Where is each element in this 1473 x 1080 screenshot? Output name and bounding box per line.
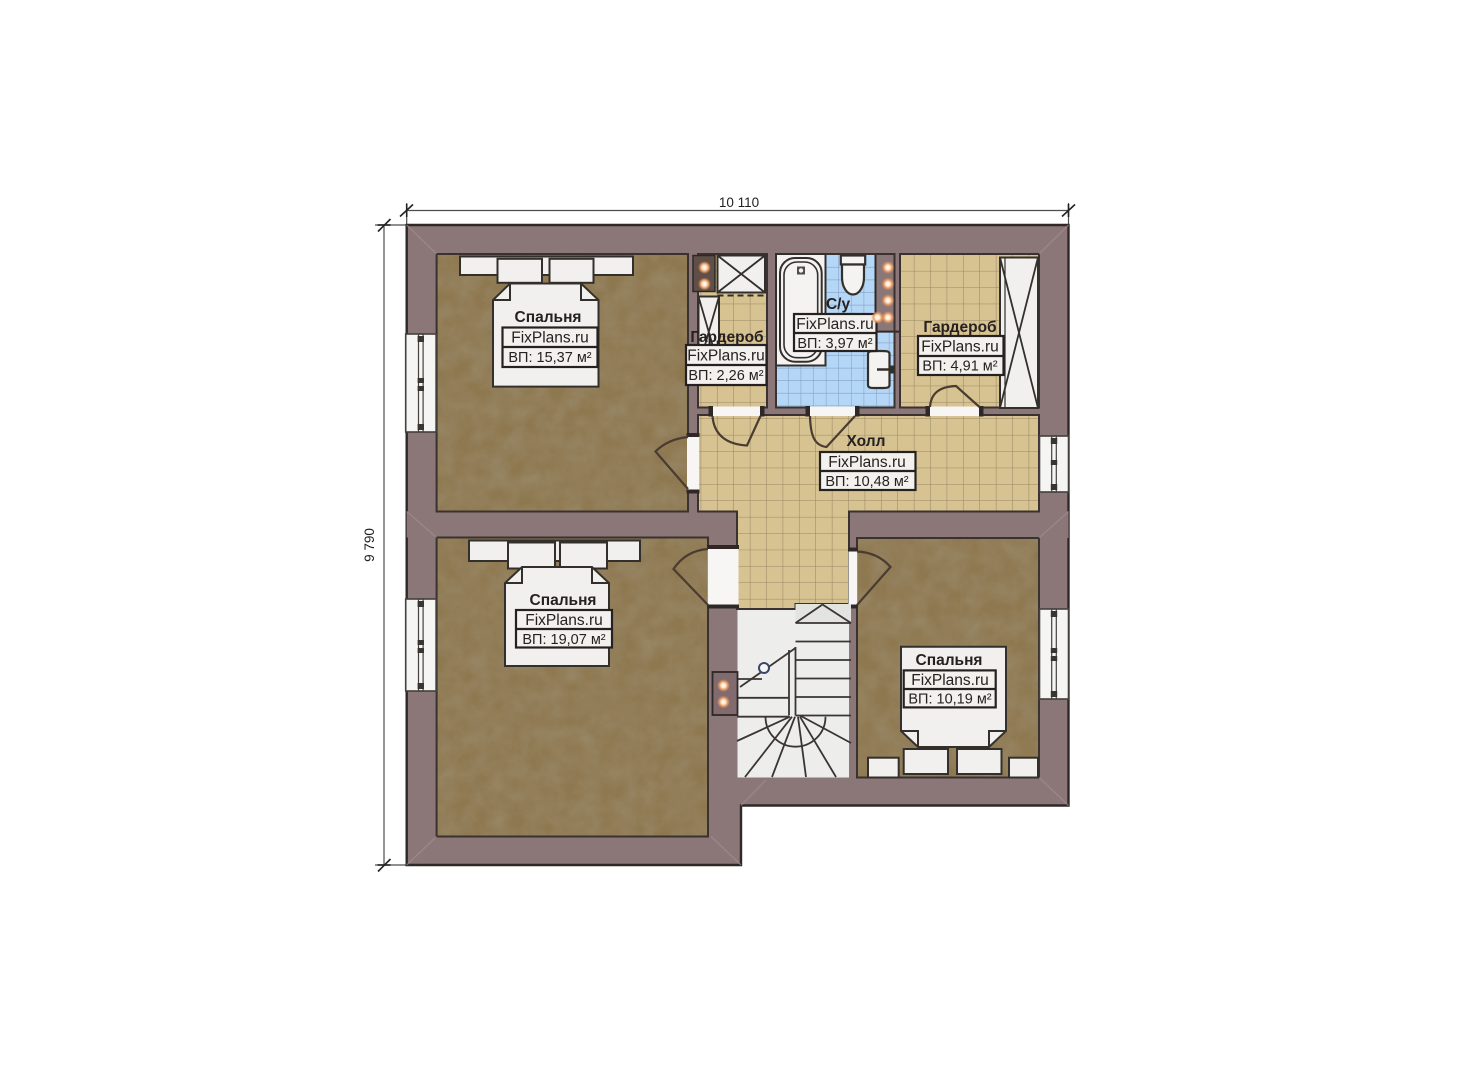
- svg-text:FixPlans.ru: FixPlans.ru: [687, 348, 765, 365]
- svg-text:ВП: 15,37 м²: ВП: 15,37 м²: [508, 350, 591, 366]
- svg-text:FixPlans.ru: FixPlans.ru: [525, 612, 603, 629]
- svg-text:Спальня: Спальня: [530, 592, 597, 609]
- svg-text:FixPlans.ru: FixPlans.ru: [911, 672, 989, 689]
- svg-text:С/у: С/у: [826, 296, 851, 313]
- svg-text:ВП: 10,19 м²: ВП: 10,19 м²: [908, 692, 991, 708]
- svg-text:FixPlans.ru: FixPlans.ru: [921, 339, 999, 356]
- svg-text:Холл: Холл: [847, 433, 886, 450]
- svg-text:9 790: 9 790: [362, 528, 377, 562]
- svg-text:Спальня: Спальня: [515, 309, 582, 326]
- svg-text:ВП: 3,97 м²: ВП: 3,97 м²: [797, 336, 872, 352]
- svg-text:FixPlans.ru: FixPlans.ru: [511, 330, 589, 347]
- svg-text:FixPlans.ru: FixPlans.ru: [796, 316, 874, 333]
- svg-text:ВП: 2,26 м²: ВП: 2,26 м²: [688, 368, 763, 384]
- svg-text:ВП: 19,07 м²: ВП: 19,07 м²: [522, 632, 605, 648]
- svg-text:Гардероб: Гардероб: [923, 319, 996, 336]
- svg-text:ВП: 10,48 м²: ВП: 10,48 м²: [825, 474, 908, 490]
- svg-text:Спальня: Спальня: [916, 652, 983, 669]
- svg-text:10 110: 10 110: [719, 195, 759, 210]
- svg-text:Гардероб: Гардероб: [690, 329, 763, 346]
- svg-text:FixPlans.ru: FixPlans.ru: [828, 454, 906, 471]
- svg-text:ВП: 4,91 м²: ВП: 4,91 м²: [922, 359, 997, 375]
